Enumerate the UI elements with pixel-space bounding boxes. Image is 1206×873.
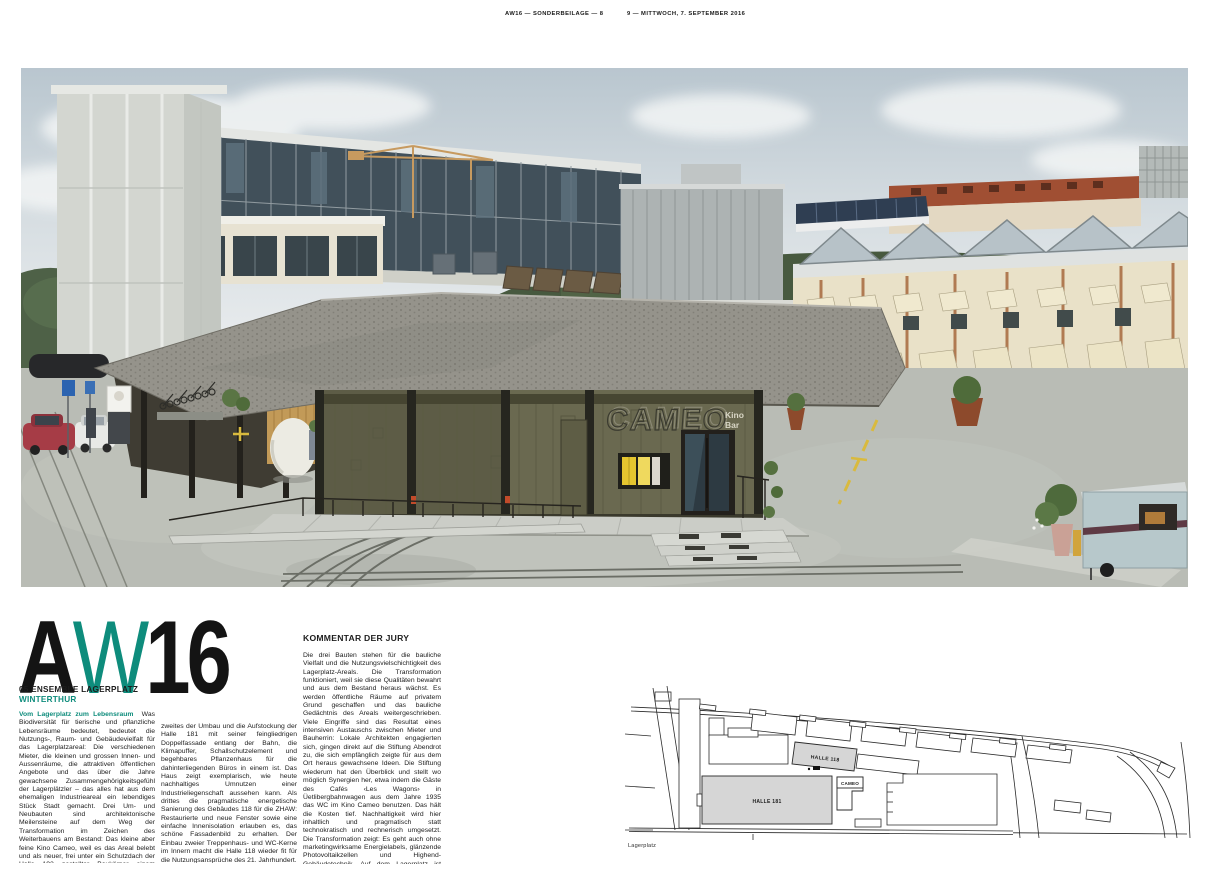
silo-building: [51, 85, 227, 370]
article-column-2: zweites der Umbau und die Aufstockung de…: [161, 723, 297, 863]
running-head-left: AW16 — SONDERBEILAGE — 8: [505, 11, 603, 17]
jury-heading: KOMMENTAR DER JURY: [303, 633, 409, 643]
svg-text:Bar: Bar: [725, 420, 740, 430]
jury-column: Die drei Bauten stehen für die bauliche …: [303, 652, 441, 864]
jury-text: Die drei Bauten stehen für die bauliche …: [303, 652, 441, 864]
lagerplatz-aerial-photo: CAMEO CAMEO Kino Bar: [21, 68, 1188, 587]
svg-text:Kino: Kino: [725, 410, 744, 420]
article-column-2-text: zweites der Umbau und die Aufstockung de…: [161, 723, 297, 863]
yellow-bollard: [1073, 530, 1081, 556]
article-lead-in: Vom Lagerplatz zum Lebensraum: [19, 711, 133, 718]
magazine-spread: AW16 — SONDERBEILAGE — 8 9 — MITTWOCH, 7…: [0, 0, 1206, 873]
article-number-title: 05 ENSEMBLE LAGERPLATZ: [19, 685, 138, 695]
article-city: WINTERTHUR: [19, 695, 138, 705]
charging-stele: [86, 408, 96, 438]
info-totem-base: [108, 412, 130, 444]
running-head-right: 9 — MITTWOCH, 7. SEPTEMBER 2016: [627, 11, 745, 17]
entrance-door: [681, 430, 735, 515]
service-door: [561, 420, 587, 515]
masthead-number-16: 16: [145, 600, 227, 716]
plan-label-halle-181: HALLE 181: [752, 799, 781, 805]
site-plan-caption: Lagerplatz: [628, 843, 656, 849]
article-kicker: 05 ENSEMBLE LAGERPLATZ WINTERTHUR: [19, 685, 138, 704]
tank-wagon: [29, 354, 109, 378]
parking-garage: [1139, 146, 1188, 198]
poster-display-case: [618, 453, 670, 489]
parking-sign: [62, 380, 75, 396]
photo-illustration: CAMEO CAMEO Kino Bar: [21, 68, 1188, 587]
article-column-1-text: Was Biodiversität für tierische und pfla…: [19, 711, 155, 863]
article-column-1: Vom Lagerplatz zum Lebensraum Was Biodiv…: [19, 711, 155, 863]
steps: [651, 530, 801, 566]
site-plan: HALLE 118 HALLE 181 CAMEO: [625, 682, 1191, 843]
plan-label-cameo: CAMEO: [841, 781, 859, 786]
